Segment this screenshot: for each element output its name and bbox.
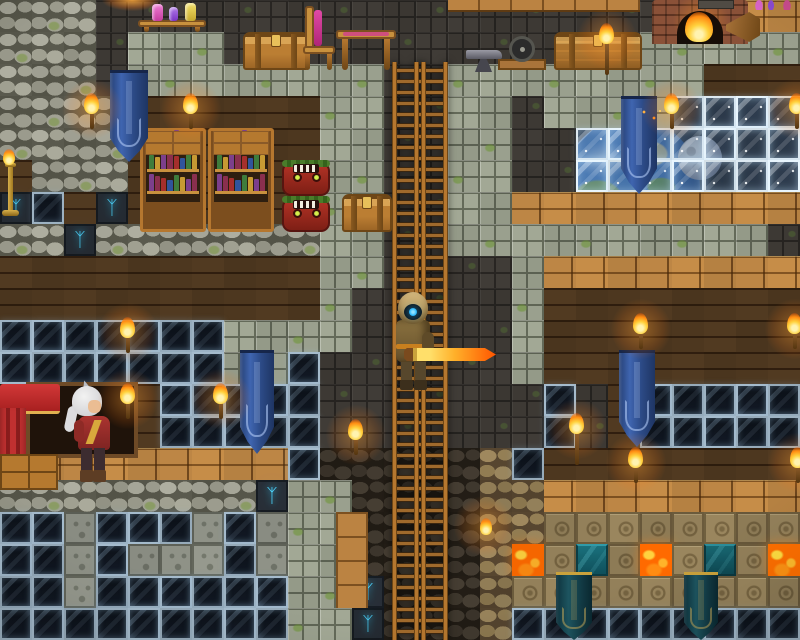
tile-stone-brick[interactable] — [288, 320, 320, 352]
tile-dark-window[interactable] — [672, 416, 704, 448]
tile-lava[interactable] — [640, 544, 672, 576]
tile-runestone[interactable]: ᛉ — [64, 224, 96, 256]
tile-sky-window[interactable] — [672, 160, 704, 192]
tile-sky-window[interactable] — [704, 128, 736, 160]
wall-torch[interactable] — [212, 384, 230, 422]
tile-cobblestone[interactable] — [64, 160, 96, 192]
tile-limestone-block[interactable] — [256, 544, 288, 576]
tile-stone-brick[interactable] — [352, 256, 384, 288]
tile-stone-brick[interactable] — [704, 224, 736, 256]
tile-dark-stone-brick[interactable] — [96, 32, 128, 64]
tile-dark-stone-brick[interactable] — [512, 128, 544, 160]
tile-dark-window[interactable] — [160, 384, 192, 416]
tile-cobblestone[interactable] — [32, 0, 64, 32]
tile-stone-brick[interactable] — [224, 320, 256, 352]
tile-wood-planks[interactable] — [640, 256, 672, 288]
tile-cobblestone[interactable] — [64, 32, 96, 64]
tile-dark-wood-wall[interactable] — [704, 352, 736, 384]
tile-dark-window[interactable] — [160, 576, 192, 608]
tile-limestone-block[interactable] — [256, 512, 288, 544]
tile-sky-window[interactable] — [736, 128, 768, 160]
wall-torch[interactable] — [788, 94, 800, 132]
tile-tan-cobble[interactable] — [480, 576, 512, 608]
tile-cobblestone[interactable] — [64, 0, 96, 32]
tile-stone-brick[interactable] — [352, 96, 384, 128]
tile-wood-planks[interactable] — [736, 480, 768, 512]
tile-dark-wood-wall[interactable] — [192, 288, 224, 320]
tile-sandstone-block[interactable] — [576, 512, 608, 544]
tile-dark-stone-brick[interactable] — [448, 416, 480, 448]
tile-dark-window[interactable] — [288, 448, 320, 480]
tile-dark-window[interactable] — [32, 320, 64, 352]
tile-dark-wood-wall[interactable] — [256, 288, 288, 320]
tile-sandstone-block[interactable] — [608, 544, 640, 576]
tile-stone-brick[interactable] — [320, 480, 352, 512]
tile-dark-window[interactable] — [160, 416, 192, 448]
wall-torch[interactable] — [663, 94, 681, 132]
tile-stone-brick[interactable] — [512, 256, 544, 288]
tile-dark-window[interactable] — [192, 576, 224, 608]
tile-wood-planks[interactable] — [544, 480, 576, 512]
tile-dark-stone-brick[interactable] — [352, 288, 384, 320]
tile-runestone[interactable]: ᛉ — [96, 192, 128, 224]
tile-stone-brick[interactable] — [480, 192, 512, 224]
tile-dark-window[interactable] — [736, 608, 768, 640]
tile-tan-cobble[interactable] — [512, 512, 544, 544]
tile-dark-stone-brick[interactable] — [352, 0, 384, 32]
tile-dark-cobble[interactable] — [448, 448, 480, 480]
tile-stone-brick[interactable] — [352, 128, 384, 160]
tile-sandstone-block[interactable] — [704, 512, 736, 544]
tile-stone-brick[interactable] — [288, 608, 320, 640]
tile-dark-wood-wall[interactable] — [288, 96, 320, 128]
potion-table[interactable] — [138, 0, 206, 32]
tile-dark-window[interactable] — [128, 512, 160, 544]
tile-sky-window[interactable] — [576, 128, 608, 160]
tile-dark-wood-wall[interactable] — [160, 288, 192, 320]
tile-tan-cobble[interactable] — [480, 448, 512, 480]
tile-wood-planks[interactable] — [704, 256, 736, 288]
tile-sky-window[interactable] — [704, 96, 736, 128]
tile-dark-window[interactable] — [64, 320, 96, 352]
tile-stone-brick[interactable] — [448, 192, 480, 224]
tile-wood-planks[interactable] — [704, 480, 736, 512]
tile-stone-brick[interactable] — [448, 96, 480, 128]
tile-dark-wood-wall[interactable] — [544, 288, 576, 320]
tile-dark-cobble[interactable] — [448, 608, 480, 640]
tile-dark-wood-wall[interactable] — [224, 256, 256, 288]
tile-cobblestone[interactable] — [32, 64, 64, 96]
dark-banner[interactable] — [556, 572, 592, 640]
book-spine — [217, 174, 222, 191]
tile-dark-wood-wall[interactable] — [544, 352, 576, 384]
wall-torch[interactable] — [786, 314, 800, 352]
chair[interactable] — [301, 6, 337, 70]
chair-seat — [303, 46, 335, 54]
tile-dark-window[interactable] — [32, 512, 64, 544]
tile-cobblestone[interactable] — [0, 64, 32, 96]
tile-dark-window[interactable] — [32, 544, 64, 576]
tile-dark-stone-brick[interactable] — [544, 160, 576, 192]
table-leg — [342, 39, 348, 70]
tile-stone-brick[interactable] — [544, 224, 576, 256]
tile-dark-wood-wall[interactable] — [256, 256, 288, 288]
tile-dark-window[interactable] — [224, 608, 256, 640]
tile-dark-wood-wall[interactable] — [288, 128, 320, 160]
tile-wood-planks[interactable] — [736, 192, 768, 224]
tile-wood-planks[interactable] — [160, 448, 192, 480]
tile-stone-brick[interactable] — [288, 576, 320, 608]
tile-limestone-block[interactable] — [128, 544, 160, 576]
grinding-wheel[interactable] — [498, 36, 546, 70]
book-spine — [260, 174, 265, 191]
tile-sandstone-block[interactable] — [768, 576, 800, 608]
tile-dark-window[interactable] — [512, 608, 544, 640]
wall-torch[interactable] — [182, 94, 200, 132]
tile-sandstone-block[interactable] — [640, 576, 672, 608]
dark-banner[interactable] — [684, 572, 718, 640]
tile-dark-wood-wall[interactable] — [672, 288, 704, 320]
wall-torch[interactable] — [632, 314, 650, 352]
wood-column[interactable] — [336, 512, 368, 608]
tile-dark-wood-wall[interactable] — [224, 288, 256, 320]
tile-dark-window[interactable] — [736, 384, 768, 416]
tiki-totem[interactable] — [280, 160, 334, 232]
tile-stone-brick[interactable] — [640, 224, 672, 256]
tile-dark-wood-wall[interactable] — [288, 256, 320, 288]
tile-stone-brick[interactable] — [608, 224, 640, 256]
tile-sandstone-block[interactable] — [544, 512, 576, 544]
tile-wood-planks[interactable] — [640, 192, 672, 224]
tile-dark-stone-brick[interactable] — [512, 384, 544, 416]
book-spine — [223, 157, 228, 169]
tile-sandstone-block[interactable] — [736, 512, 768, 544]
tile-dark-window[interactable] — [224, 576, 256, 608]
tile-wood-planks[interactable] — [768, 256, 800, 288]
tile-wood-planks[interactable] — [512, 192, 544, 224]
tile-dark-stone-brick[interactable] — [544, 128, 576, 160]
book-spine — [161, 178, 166, 191]
tile-cobblestone[interactable] — [96, 224, 128, 256]
tile-stone-brick[interactable] — [480, 96, 512, 128]
wall-torch[interactable] — [119, 384, 137, 422]
tile-cobblestone[interactable] — [32, 32, 64, 64]
tile-dark-wood-wall[interactable] — [128, 256, 160, 288]
tile-dark-window[interactable] — [96, 576, 128, 608]
tile-dark-stone-brick[interactable] — [384, 0, 416, 32]
bed-drawers — [0, 454, 58, 490]
tile-dark-window[interactable] — [768, 608, 800, 640]
tile-cobblestone[interactable] — [224, 480, 256, 512]
player-character[interactable] — [384, 292, 496, 396]
tile-dark-window[interactable] — [160, 352, 192, 384]
wall-torch[interactable] — [119, 318, 137, 356]
tile-dark-window[interactable] — [0, 320, 32, 352]
tile-dark-window[interactable] — [192, 608, 224, 640]
tile-lava[interactable] — [768, 544, 800, 576]
tile-dark-window[interactable] — [768, 384, 800, 416]
tile-sandstone-block[interactable] — [608, 576, 640, 608]
tile-stone-brick[interactable] — [768, 32, 800, 64]
tile-stone-brick[interactable] — [512, 288, 544, 320]
tile-dark-wood-wall[interactable] — [160, 256, 192, 288]
tile-dark-stone-brick[interactable] — [416, 0, 448, 32]
tile-dark-stone-brick[interactable] — [512, 96, 544, 128]
tile-dark-wood-wall[interactable] — [0, 256, 32, 288]
tile-sky-window[interactable] — [736, 96, 768, 128]
tile-stone-brick[interactable] — [448, 160, 480, 192]
tile-dark-window[interactable] — [256, 576, 288, 608]
tile-cobblestone[interactable] — [0, 96, 32, 128]
tile-cobblestone[interactable] — [32, 96, 64, 128]
table[interactable] — [336, 30, 396, 70]
tile-stone-brick[interactable] — [192, 32, 224, 64]
tile-dark-wood-wall[interactable] — [704, 288, 736, 320]
tile-dark-window[interactable] — [160, 512, 192, 544]
tile-sandstone-block[interactable] — [736, 544, 768, 576]
tile-dark-wood-wall[interactable] — [736, 352, 768, 384]
wooden-chest[interactable] — [342, 194, 392, 232]
tile-dark-window[interactable] — [0, 352, 32, 384]
tile-dark-wood-wall[interactable] — [672, 320, 704, 352]
tile-limestone-block[interactable] — [160, 544, 192, 576]
tile-sandstone-block[interactable] — [608, 512, 640, 544]
tile-dark-stone-brick[interactable] — [512, 160, 544, 192]
tile-runestone[interactable]: ᛉ — [256, 480, 288, 512]
tile-dark-window[interactable] — [32, 608, 64, 640]
tile-stone-brick[interactable] — [288, 480, 320, 512]
tile-dark-window[interactable] — [288, 416, 320, 448]
tile-limestone-block[interactable] — [192, 512, 224, 544]
tile-sandstone-block[interactable] — [640, 512, 672, 544]
tile-cobblestone[interactable] — [0, 0, 32, 32]
tile-dark-wood-wall[interactable] — [576, 288, 608, 320]
tile-dark-window[interactable] — [160, 608, 192, 640]
wall-torch[interactable] — [83, 94, 101, 132]
tile-dark-window[interactable] — [96, 544, 128, 576]
tile-stone-brick[interactable] — [672, 224, 704, 256]
tile-stone-brick[interactable] — [320, 608, 352, 640]
tile-cobblestone[interactable] — [192, 480, 224, 512]
tile-dark-window[interactable] — [672, 384, 704, 416]
tile-dark-window[interactable] — [96, 608, 128, 640]
tile-sky-window[interactable] — [576, 160, 608, 192]
tile-stone-brick[interactable] — [320, 96, 352, 128]
anvil[interactable] — [466, 46, 502, 72]
tile-dark-wood-wall[interactable] — [672, 352, 704, 384]
tile-stone-brick[interactable] — [576, 96, 608, 128]
tile-dark-cobble[interactable] — [448, 576, 480, 608]
tile-dark-window[interactable] — [224, 512, 256, 544]
tile-tan-cobble[interactable] — [512, 480, 544, 512]
tile-dark-stone-brick[interactable] — [352, 320, 384, 352]
tile-dark-window[interactable] — [0, 576, 32, 608]
tile-sandstone-block[interactable] — [672, 512, 704, 544]
tile-cobblestone[interactable] — [32, 224, 64, 256]
tile-cobblestone[interactable] — [32, 128, 64, 160]
tile-dark-stone-brick[interactable] — [512, 416, 544, 448]
tile-wood-planks[interactable] — [544, 256, 576, 288]
tile-stone-brick[interactable] — [448, 128, 480, 160]
tile-dark-window[interactable] — [704, 416, 736, 448]
tile-dark-stone-brick[interactable] — [224, 0, 256, 32]
tile-stone-brick[interactable] — [512, 352, 544, 384]
tile-dark-wood-wall[interactable] — [576, 352, 608, 384]
tile-stone-brick[interactable] — [128, 32, 160, 64]
tile-stone-brick[interactable] — [512, 320, 544, 352]
tile-wood-planks[interactable] — [608, 192, 640, 224]
tile-wood-planks[interactable] — [672, 480, 704, 512]
tile-limestone-block[interactable] — [64, 576, 96, 608]
tile-dark-window[interactable] — [0, 512, 32, 544]
tile-stone-brick[interactable] — [512, 224, 544, 256]
tile-sky-window[interactable] — [704, 160, 736, 192]
tile-sandstone-block[interactable] — [768, 512, 800, 544]
tile-dark-wood-wall[interactable] — [32, 288, 64, 320]
tile-stone-brick[interactable] — [576, 224, 608, 256]
candelabra[interactable] — [0, 156, 22, 216]
tile-sky-window[interactable] — [736, 160, 768, 192]
tile-dark-window[interactable] — [32, 192, 64, 224]
tile-dark-window[interactable] — [0, 544, 32, 576]
tile-stone-brick[interactable] — [544, 96, 576, 128]
tile-tan-cobble[interactable] — [480, 608, 512, 640]
tile-dark-wood-wall[interactable] — [576, 320, 608, 352]
tile-dark-window[interactable] — [128, 608, 160, 640]
wall-torch[interactable] — [568, 414, 588, 482]
bookshelf-shelf — [215, 153, 267, 172]
tile-dark-wood-wall[interactable] — [256, 96, 288, 128]
tile-dark-wood-wall[interactable] — [736, 320, 768, 352]
tile-stone-brick[interactable] — [320, 288, 352, 320]
tile-dark-wood-wall[interactable] — [64, 288, 96, 320]
tile-stone-brick[interactable] — [320, 256, 352, 288]
bookshelf[interactable] — [208, 128, 274, 232]
tile-dark-window[interactable] — [512, 448, 544, 480]
tile-dark-wood-wall[interactable] — [0, 288, 32, 320]
tile-wood-planks[interactable] — [672, 192, 704, 224]
tile-dark-stone-brick[interactable] — [320, 352, 352, 384]
tile-dark-stone-brick[interactable] — [352, 352, 384, 384]
tile-dark-window[interactable] — [224, 544, 256, 576]
tile-dark-wood-wall[interactable] — [192, 256, 224, 288]
tile-dark-window[interactable] — [128, 576, 160, 608]
wall-torch[interactable] — [598, 24, 618, 72]
wall-torch[interactable] — [789, 448, 800, 488]
tile-limestone-block[interactable] — [192, 544, 224, 576]
tile-wood-planks[interactable] — [608, 256, 640, 288]
tile-dark-window[interactable] — [0, 608, 32, 640]
tile-stone-brick[interactable] — [736, 224, 768, 256]
tile-dark-wood-wall[interactable] — [672, 448, 704, 480]
tile-dark-wood-wall[interactable] — [224, 96, 256, 128]
tile-dark-wood-wall[interactable] — [736, 288, 768, 320]
tile-dark-window[interactable] — [288, 384, 320, 416]
tile-dark-wood-wall[interactable] — [736, 448, 768, 480]
tile-dark-stone-brick[interactable] — [256, 0, 288, 32]
tile-wood-planks[interactable] — [544, 192, 576, 224]
tile-dark-cobble[interactable] — [352, 480, 384, 512]
tile-dark-wood-wall[interactable] — [736, 64, 768, 96]
tile-sandstone-block[interactable] — [512, 576, 544, 608]
tile-cobblestone[interactable] — [96, 160, 128, 192]
tile-stone-brick[interactable] — [480, 128, 512, 160]
tile-dark-window[interactable] — [256, 608, 288, 640]
tile-dark-wood-wall[interactable] — [544, 320, 576, 352]
tile-sky-window[interactable] — [768, 160, 800, 192]
tile-stone-brick[interactable] — [448, 224, 480, 256]
tile-dark-window[interactable] — [736, 416, 768, 448]
tile-wood-planks[interactable] — [768, 192, 800, 224]
tile-stone-brick[interactable] — [352, 160, 384, 192]
tile-dark-wood-wall[interactable] — [32, 256, 64, 288]
tile-wood-planks[interactable] — [576, 192, 608, 224]
tile-sandstone-block[interactable] — [736, 576, 768, 608]
tile-stone-brick[interactable] — [320, 320, 352, 352]
tile-wood-planks[interactable] — [576, 480, 608, 512]
wooden-chest[interactable] — [243, 32, 309, 70]
tile-runestone[interactable]: ᛉ — [352, 608, 384, 640]
tile-dark-wood-wall[interactable] — [704, 320, 736, 352]
tile-lava[interactable] — [512, 544, 544, 576]
book-spine — [229, 178, 234, 191]
tile-wood-planks[interactable] — [576, 256, 608, 288]
tile-wood-planks[interactable] — [192, 448, 224, 480]
tile-dark-stone-brick[interactable] — [480, 256, 512, 288]
tile-dark-stone-brick[interactable] — [416, 32, 448, 64]
tile-stone-brick[interactable] — [480, 224, 512, 256]
tile-limestone-block[interactable] — [64, 544, 96, 576]
tile-cobblestone[interactable] — [32, 160, 64, 192]
tile-stone-brick[interactable] — [288, 512, 320, 544]
tile-dark-window[interactable] — [608, 608, 640, 640]
tile-stone-brick[interactable] — [160, 32, 192, 64]
tile-dark-wood-wall[interactable] — [64, 256, 96, 288]
tile-stone-brick[interactable] — [320, 128, 352, 160]
tile-dark-wood-wall[interactable] — [288, 288, 320, 320]
tile-dark-window[interactable] — [704, 384, 736, 416]
tile-dark-stone-brick[interactable] — [480, 416, 512, 448]
tile-wood-planks[interactable] — [736, 256, 768, 288]
tile-dark-window[interactable] — [640, 608, 672, 640]
tile-cobblestone[interactable] — [0, 32, 32, 64]
tile-dark-window[interactable] — [160, 320, 192, 352]
tile-cobblestone[interactable] — [160, 480, 192, 512]
tile-dark-window[interactable] — [288, 352, 320, 384]
book-spine — [174, 156, 179, 169]
tile-wood-planks[interactable] — [672, 256, 704, 288]
tile-dark-window[interactable] — [64, 608, 96, 640]
tile-dark-wood-wall[interactable] — [704, 448, 736, 480]
tile-cobblestone[interactable] — [0, 224, 32, 256]
tile-stone-brick[interactable] — [288, 544, 320, 576]
tile-dark-window[interactable] — [32, 576, 64, 608]
tile-dark-stone-brick[interactable] — [448, 256, 480, 288]
wall-torch[interactable] — [627, 448, 645, 488]
bookshelf[interactable] — [140, 128, 206, 232]
tile-dark-stone-brick[interactable] — [768, 224, 800, 256]
tile-stone-brick[interactable] — [256, 320, 288, 352]
tile-wood-planks[interactable] — [704, 192, 736, 224]
tile-dark-wood-wall[interactable] — [96, 256, 128, 288]
tile-stone-brick[interactable] — [480, 160, 512, 192]
wall-torch[interactable] — [347, 420, 365, 458]
tile-dark-window[interactable] — [96, 512, 128, 544]
tile-dark-wood-wall[interactable] — [704, 64, 736, 96]
tile-limestone-block[interactable] — [64, 512, 96, 544]
tile-dark-wood-wall[interactable] — [64, 192, 96, 224]
tile-dark-window[interactable] — [192, 320, 224, 352]
